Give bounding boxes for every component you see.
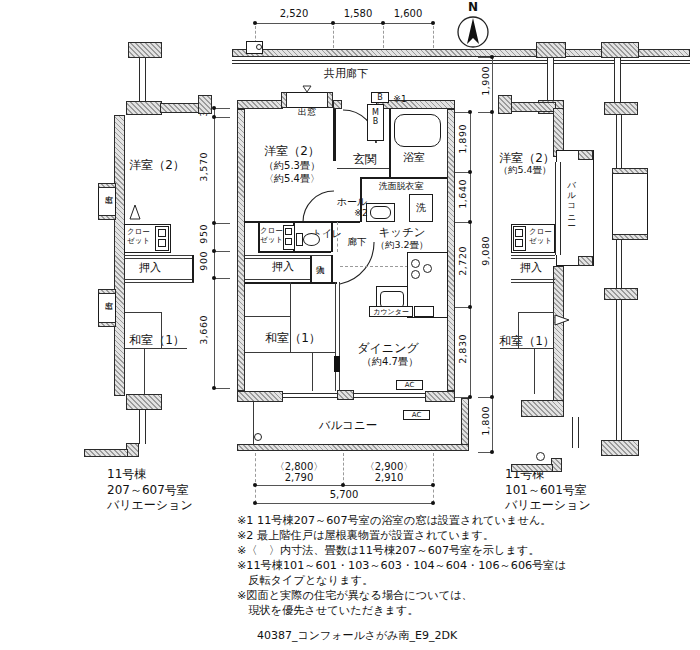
dim-bottom-total: 5,700 <box>330 489 359 500</box>
wall <box>128 42 162 58</box>
window-mark-icon <box>302 85 312 93</box>
door-knob-icon <box>256 44 262 50</box>
dim-bottom-1: 2,790 <box>285 472 314 483</box>
door-arc <box>339 241 375 285</box>
drain-icon <box>536 452 545 461</box>
dim-right-1640: 1,640 <box>457 179 468 209</box>
wall <box>521 400 564 417</box>
range-hood-box <box>414 306 434 317</box>
bay-window-label: 出窓 <box>298 106 316 119</box>
toilet-icon <box>296 233 303 246</box>
note-4: ※11号棟101～601・103～603・104～604・106～606号室は <box>237 558 566 573</box>
wall <box>337 390 354 400</box>
window <box>547 58 554 102</box>
notes-block: ※1 11号棟207～607号室の浴室の窓は設置されていません。 ※2 最上階住… <box>237 513 566 618</box>
wall <box>601 440 639 456</box>
wall <box>198 95 212 114</box>
wall <box>84 449 128 457</box>
wall <box>126 101 162 115</box>
door-swing-icon <box>129 204 141 220</box>
room-label-entrance: 玄関 <box>353 151 377 168</box>
wall <box>601 42 639 58</box>
drain-icon <box>254 433 262 441</box>
closet-label-l2: ゼット <box>127 236 150 246</box>
room-label-japanese1: 和室（1） <box>265 330 321 347</box>
laundry-space: 洗 <box>409 194 433 222</box>
window <box>555 162 561 255</box>
wall <box>604 102 638 115</box>
dim-left-2: 3,570 <box>198 152 209 182</box>
dim-right-2830: 2,830 <box>457 334 468 364</box>
variation-caption-left: 11号棟 207～607号室 バリエーション <box>107 467 193 514</box>
wall <box>333 100 342 109</box>
caption-left-line2: 207～607号室 <box>107 483 193 499</box>
dim-right-2720: 2,720 <box>457 246 468 276</box>
window <box>139 58 146 103</box>
room-label-washroom: 洗面脱衣室 <box>379 180 424 193</box>
caption-left-line3: バリエーション <box>107 498 193 514</box>
room-label-japanese1-left: 和室（1） <box>129 332 185 349</box>
window <box>614 58 621 102</box>
interior-wall <box>360 177 447 179</box>
note-1: ※1 11号棟207～607号室の浴室の窓は設置されていません。 <box>237 513 566 528</box>
dim-top-1: 2,520 <box>280 8 309 19</box>
interior-wall <box>333 109 336 161</box>
bathtub <box>394 114 441 147</box>
stove-burner-icon <box>423 264 432 273</box>
interior-wall <box>389 109 391 179</box>
counter-label: カウンター <box>369 306 413 317</box>
room-label-oshiire: 押入 <box>272 259 294 274</box>
room-label-bath: 浴室 <box>403 150 425 165</box>
ac-badge: AC <box>396 380 423 390</box>
wall <box>498 95 512 114</box>
room-area-western2-b: 〈約5.4畳〉 <box>264 172 320 186</box>
caption-right-line3: バリエーション <box>505 498 591 514</box>
room-label-western2-left: 洋室（2） <box>129 157 185 174</box>
stove-burner-icon <box>411 259 420 268</box>
room-label-western2: 洋室（2） <box>264 143 320 160</box>
note-6: ※図面と実際の住宅が異なる場合については、 <box>237 588 566 603</box>
wall <box>447 109 455 391</box>
caption-left-line1: 11号棟 <box>107 467 193 483</box>
dim-line <box>255 23 433 24</box>
note-ref-2: ※2 <box>354 208 367 218</box>
room-area-kitchen: （約3.2畳） <box>375 239 428 252</box>
dim-right-1800: 1,800 <box>480 406 491 436</box>
meter-box-label: MB <box>371 108 380 126</box>
note-2: ※2 最上階住戸は屋根裏物置が設置されています。 <box>237 528 566 543</box>
room-area-dining: （約4.7畳） <box>362 355 418 369</box>
note-3: ※〈 〉内寸法、畳数は11号棟207～607号室を示します。 <box>237 543 566 558</box>
toilet-icon <box>303 233 320 246</box>
window <box>616 300 622 440</box>
dim-right-9080: 9,080 <box>480 236 491 266</box>
wall <box>461 398 469 445</box>
wall <box>126 394 162 410</box>
window <box>616 115 622 168</box>
dim-right-1890: 1,890 <box>457 124 468 154</box>
caption-right-line2: 101～601号室 <box>505 483 591 499</box>
door-swing-icon <box>554 314 570 326</box>
floor-plan-canvas: 2,520 1,580 1,600 N 共用廊下 305 3,570 950 9… <box>0 0 700 650</box>
window <box>139 410 146 444</box>
note-ref-1: ※1 <box>393 94 406 104</box>
dim-bottom-2: 2,910 <box>375 472 404 483</box>
b-box: B <box>371 92 389 103</box>
compass-icon <box>456 14 490 50</box>
window <box>616 240 622 288</box>
room-label-oshiire-right: 押入 <box>520 260 542 275</box>
dim-left-5: 3,660 <box>198 315 209 345</box>
stove-burner-icon <box>411 270 420 279</box>
wall <box>237 109 245 391</box>
window <box>354 393 425 398</box>
wall <box>604 288 638 300</box>
wall <box>511 464 553 472</box>
room-area-western2-right: （約5.4畳） <box>498 164 551 177</box>
window <box>572 417 579 448</box>
corridor-edge <box>232 60 690 64</box>
dim-left-4: 900 <box>198 251 209 271</box>
note-7: 現状を優先させていただきます。 <box>237 603 566 618</box>
wall <box>425 391 455 402</box>
room-area-western2-a: （約5.3畳） <box>264 159 320 173</box>
closet-label-l2: ゼット <box>260 235 283 245</box>
sliding-door-handle <box>334 356 340 372</box>
wall <box>510 102 556 112</box>
wall <box>536 42 566 58</box>
dim-top-3: 1,600 <box>394 8 423 19</box>
ac-badge: AC <box>403 410 430 420</box>
wall <box>237 100 283 109</box>
wall <box>237 391 283 402</box>
balcony-edge <box>237 444 469 451</box>
balcony-label-right: バルコニー <box>566 175 578 224</box>
bay-window <box>612 168 648 240</box>
variation-caption-right: 11号棟 101～601号室 バリエーション <box>505 467 591 514</box>
room-label-oshiire-left: 押入 <box>139 260 161 275</box>
room-label-hall: ホール <box>337 195 367 209</box>
note-5: 反転タイプとなります。 <box>237 573 566 588</box>
interior-wall <box>244 221 360 223</box>
plan-title: 40387_コンフォールさがみ南_E9_2DK <box>257 628 457 643</box>
dim-top-2: 1,580 <box>344 8 373 19</box>
window <box>283 393 337 398</box>
closet-label-l2: ゼット <box>529 236 552 246</box>
dim-right-1900: 1,900 <box>480 66 491 96</box>
compass-n-label: N <box>468 0 478 14</box>
room-label-balcony: バルコニー <box>319 418 378 433</box>
corridor-label: 共用廊下 <box>324 66 368 81</box>
door-arc <box>302 190 335 223</box>
dim-left-3: 950 <box>198 224 209 244</box>
room-label-kitchen: キッチン <box>378 225 425 240</box>
